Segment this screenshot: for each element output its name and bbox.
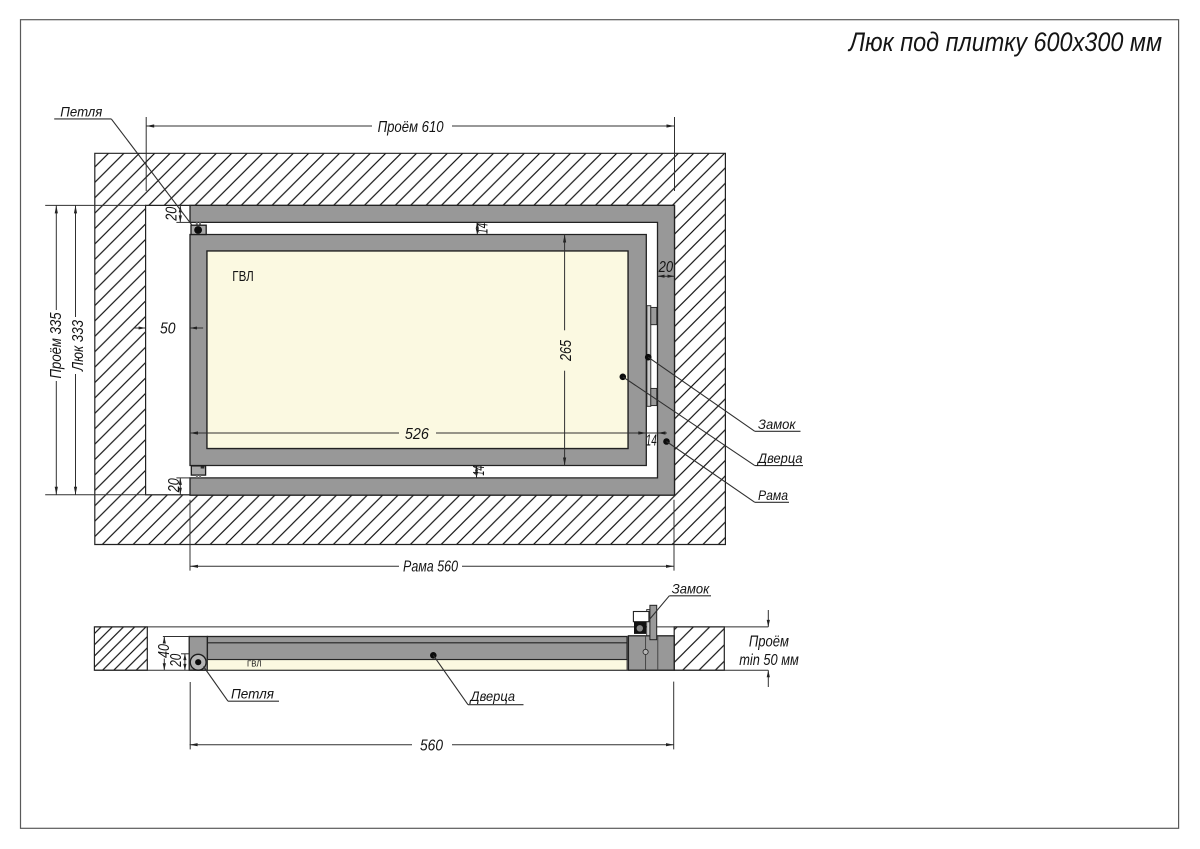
svg-text:50: 50	[160, 321, 176, 338]
svg-text:Люк 333: Люк 333	[70, 320, 87, 372]
svg-text:Петля: Петля	[231, 686, 274, 702]
svg-text:526: 526	[405, 426, 429, 443]
svg-text:ГВЛ: ГВЛ	[232, 268, 254, 285]
svg-text:Проём 610: Проём 610	[378, 119, 444, 136]
svg-text:Дверца: Дверца	[469, 688, 516, 704]
svg-text:14: 14	[646, 433, 657, 450]
svg-text:14: 14	[475, 223, 492, 234]
svg-text:min 50 мм: min 50 мм	[739, 652, 799, 669]
svg-text:20: 20	[166, 478, 183, 493]
svg-text:20: 20	[168, 654, 185, 668]
svg-text:560: 560	[420, 737, 443, 754]
svg-text:Проём: Проём	[749, 634, 789, 651]
svg-text:265: 265	[558, 340, 575, 362]
svg-text:20: 20	[658, 259, 673, 276]
svg-text:Замок: Замок	[672, 580, 711, 596]
svg-text:Проём 335: Проём 335	[48, 312, 65, 378]
svg-text:Люк под плитку 600х300 мм: Люк под плитку 600х300 мм	[847, 27, 1162, 57]
svg-text:Рама 560: Рама 560	[403, 559, 458, 576]
svg-text:Дверца: Дверца	[756, 450, 803, 466]
svg-text:20: 20	[163, 207, 180, 222]
svg-text:Рама: Рама	[758, 487, 788, 503]
svg-text:Замок: Замок	[758, 416, 797, 432]
svg-text:Петля: Петля	[60, 103, 102, 119]
svg-text:14: 14	[471, 466, 488, 476]
svg-text:ГВЛ: ГВЛ	[247, 659, 262, 669]
